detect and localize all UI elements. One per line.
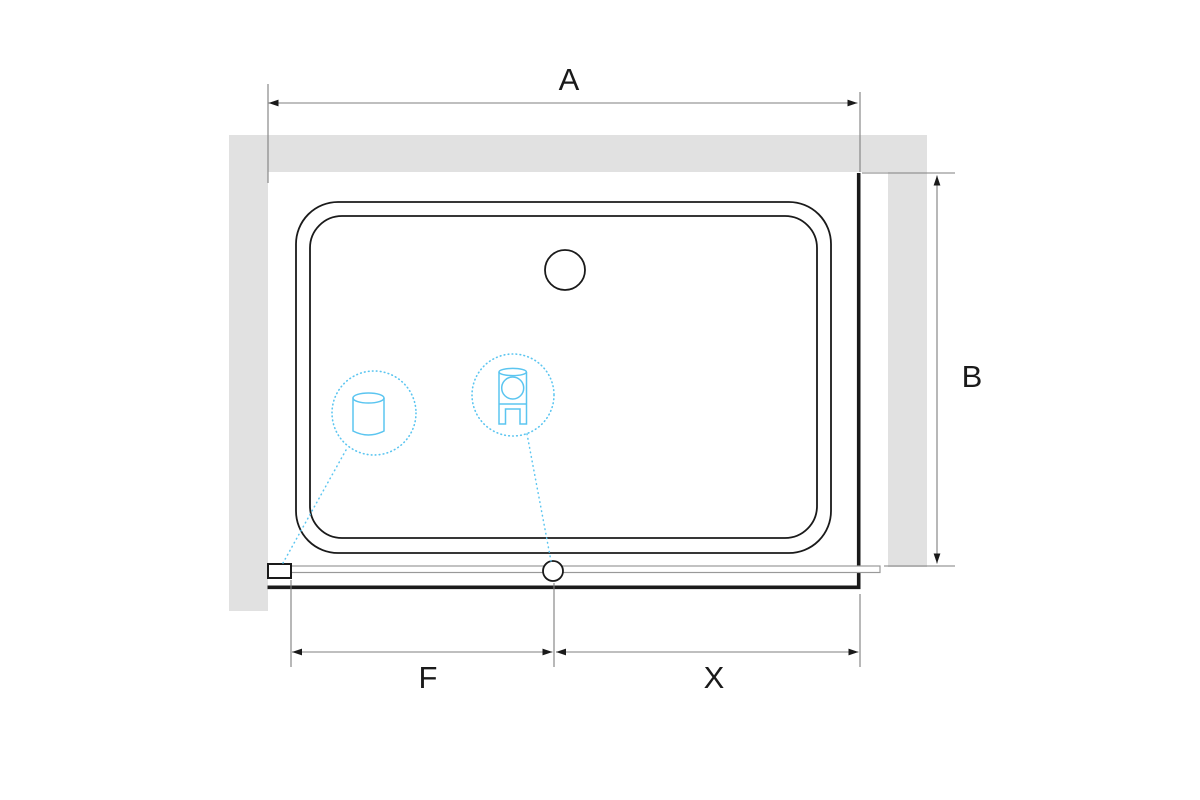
- callout-roller-detail: [472, 354, 554, 561]
- fixed-glass-panels: [268, 173, 859, 587]
- left-wall: [229, 135, 268, 611]
- shower-tray: [296, 202, 831, 553]
- handle-detail-bubble: [332, 371, 416, 455]
- schematic-canvas: A B F X: [0, 0, 1200, 800]
- tray-outer-edge: [296, 202, 831, 553]
- door-roller: [543, 561, 563, 581]
- tray-inner-edge: [310, 216, 817, 538]
- right-wall: [888, 172, 927, 567]
- door-glass-panel: [291, 566, 880, 573]
- roller-leader-line: [527, 434, 551, 561]
- shower-enclosure-drawing: A B F X: [0, 0, 1200, 800]
- dim-label-f: F: [419, 660, 438, 695]
- sliding-door-assembly: [268, 561, 880, 581]
- roller-detail-bubble: [472, 354, 554, 436]
- dim-label-b: B: [962, 359, 983, 394]
- dim-label-a: A: [559, 62, 580, 97]
- door-handle: [268, 564, 291, 578]
- walls: [229, 135, 927, 611]
- top-wall: [229, 135, 927, 172]
- roller-bracket-icon: [499, 368, 527, 424]
- knob-cylinder-icon: [353, 393, 384, 435]
- drain-icon: [545, 250, 585, 290]
- dim-label-x: X: [704, 660, 725, 695]
